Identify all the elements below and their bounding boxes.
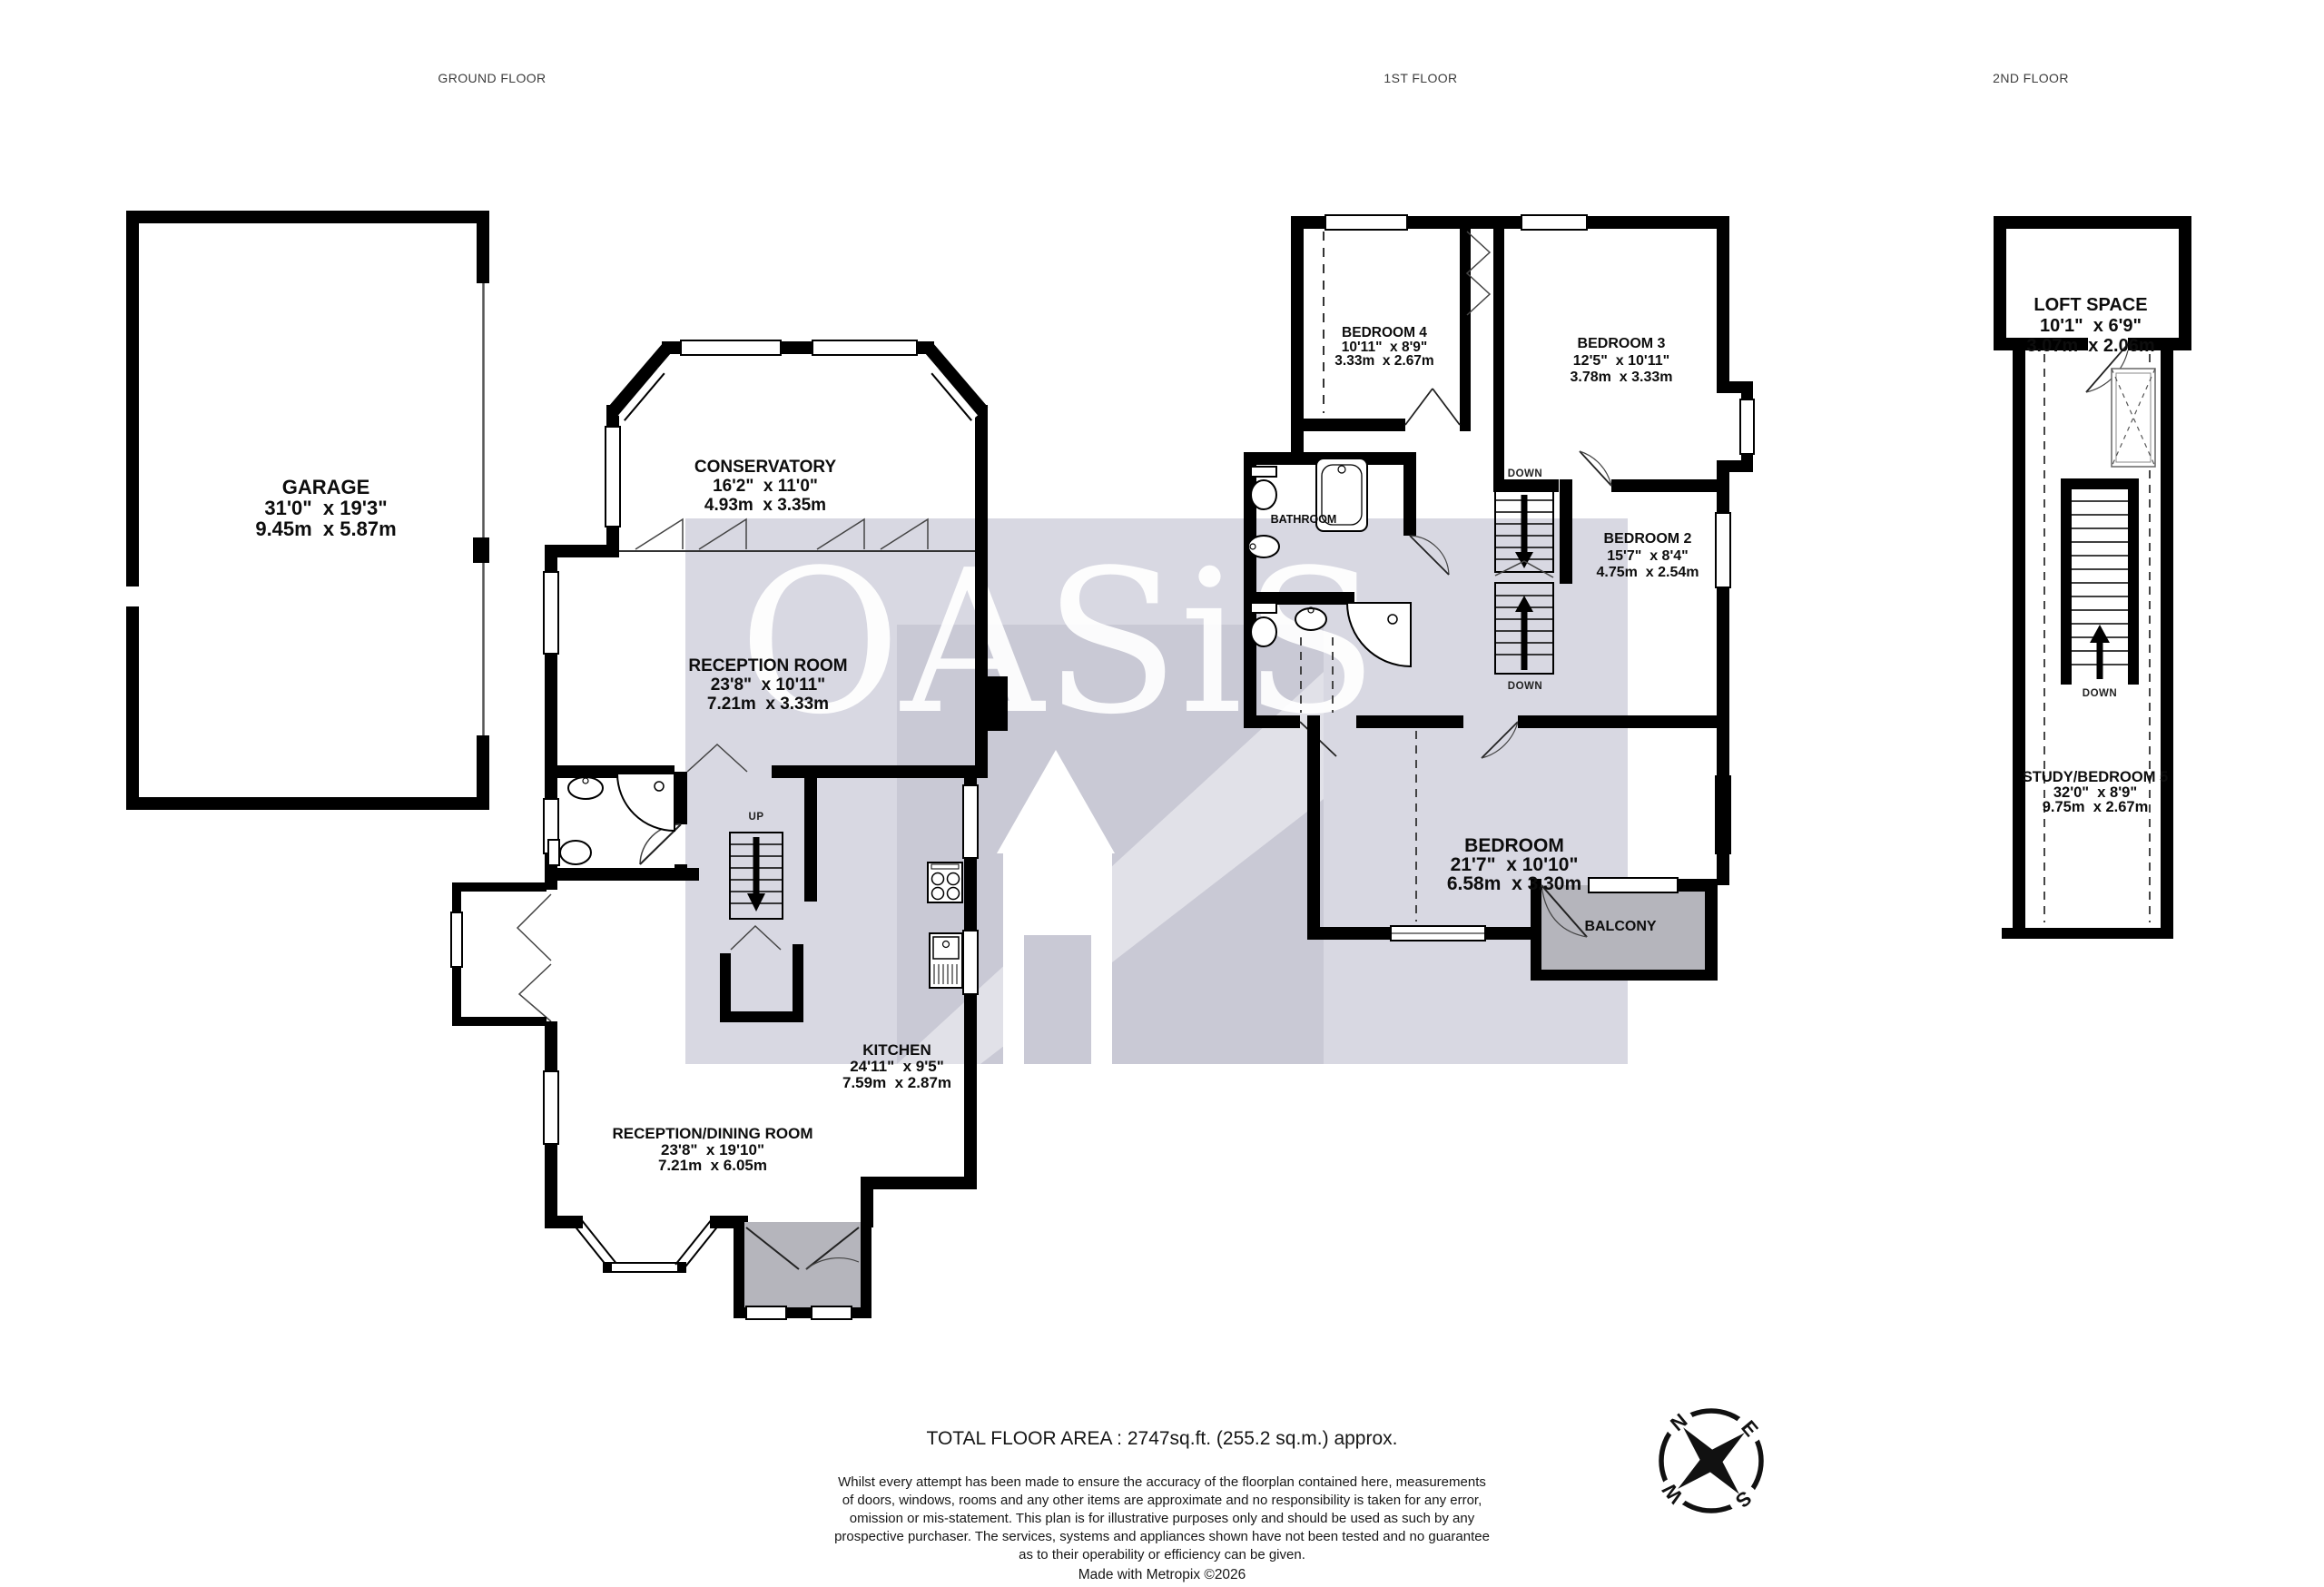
label-stairs-up: UP	[749, 812, 764, 823]
label-stairs-down-3: DOWN	[2083, 688, 2117, 699]
label-balcony: BALCONY	[1584, 919, 1656, 935]
disclaimer-line-2: of doors, windows, rooms and any other i…	[842, 1492, 1482, 1510]
floorplan-drawing	[0, 0, 2324, 1587]
disclaimer-line-4: prospective purchaser. The services, sys…	[834, 1528, 1490, 1546]
room-label-reception-dining: RECEPTION/DINING ROOM23'8" x 19'10"7.21m…	[612, 1094, 812, 1206]
room-label-bedroom2: BEDROOM 215'7" x 8'4"4.75m x 2.54m	[1597, 498, 1699, 616]
room-label-kitchen: KITCHEN24'11" x 9'5"7.59m x 2.87m	[842, 1010, 951, 1124]
room-label-conservatory: CONSERVATORY16'2" x 11'0"4.93m x 3.35m	[694, 419, 836, 553]
disclaimer-line-5: as to their operability or efficiency ca…	[1019, 1546, 1305, 1564]
room-label-reception: RECEPTION ROOM23'8" x 10'11"7.21m x 3.33…	[688, 618, 847, 752]
room-label-loft: LOFT SPACE10'1" x 6'9"3.07m x 2.06m	[2026, 254, 2154, 398]
label-stairs-down-1: DOWN	[1508, 468, 1542, 479]
room-label-garage: GARAGE31'0" x 19'3"9.45m x 5.87m	[255, 435, 396, 581]
room-label-bedroom-master: BEDROOM21'7" x 10'10"6.58m x 3.30m	[1447, 798, 1581, 931]
room-label-study: STUDY/BEDROOM 532'0" x 8'9"9.75m x 2.67m	[2023, 740, 2168, 845]
disclaimer-line-1: Whilst every attempt has been made to en…	[838, 1474, 1486, 1492]
label-stairs-down-2: DOWN	[1508, 681, 1542, 692]
floorplan-page: OASiS GROUND FLOOR 1ST FLOOR 2ND FLOOR	[0, 0, 2324, 1587]
compass-icon: N E S W	[1654, 1404, 1768, 1518]
disclaimer-line-3: omission or mis-statement. This plan is …	[850, 1510, 1474, 1528]
room-label-bedroom3: BEDROOM 312'5" x 10'11"3.78m x 3.33m	[1571, 302, 1673, 420]
label-bathroom: BATHROOM	[1271, 513, 1337, 526]
room-label-bedroom4: BEDROOM 410'11" x 8'9"3.33m x 2.67m	[1334, 298, 1433, 397]
total-floor-area: TOTAL FLOOR AREA : 2747sq.ft. (255.2 sq.…	[926, 1428, 1397, 1450]
metropix-credit: Made with Metropix ©2026	[1078, 1567, 1246, 1583]
